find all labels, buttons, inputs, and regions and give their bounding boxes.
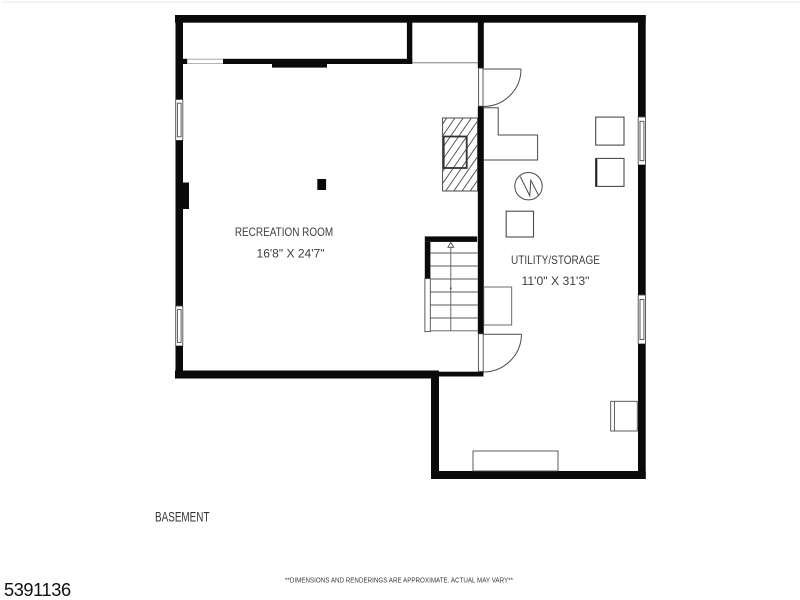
svg-text:UTILITY/STORAGE: UTILITY/STORAGE bbox=[511, 254, 600, 267]
svg-text:16'8" X 24'7": 16'8" X 24'7" bbox=[257, 248, 325, 261]
svg-text:11'0" X 31'3": 11'0" X 31'3" bbox=[522, 275, 590, 288]
svg-text:**DIMENSIONS AND RENDERINGS AR: **DIMENSIONS AND RENDERINGS ARE APPROXIM… bbox=[285, 576, 513, 585]
svg-text:BASEMENT: BASEMENT bbox=[155, 509, 210, 524]
svg-text:RECREATION ROOM: RECREATION ROOM bbox=[235, 226, 333, 239]
svg-text:5391136: 5391136 bbox=[4, 580, 71, 600]
